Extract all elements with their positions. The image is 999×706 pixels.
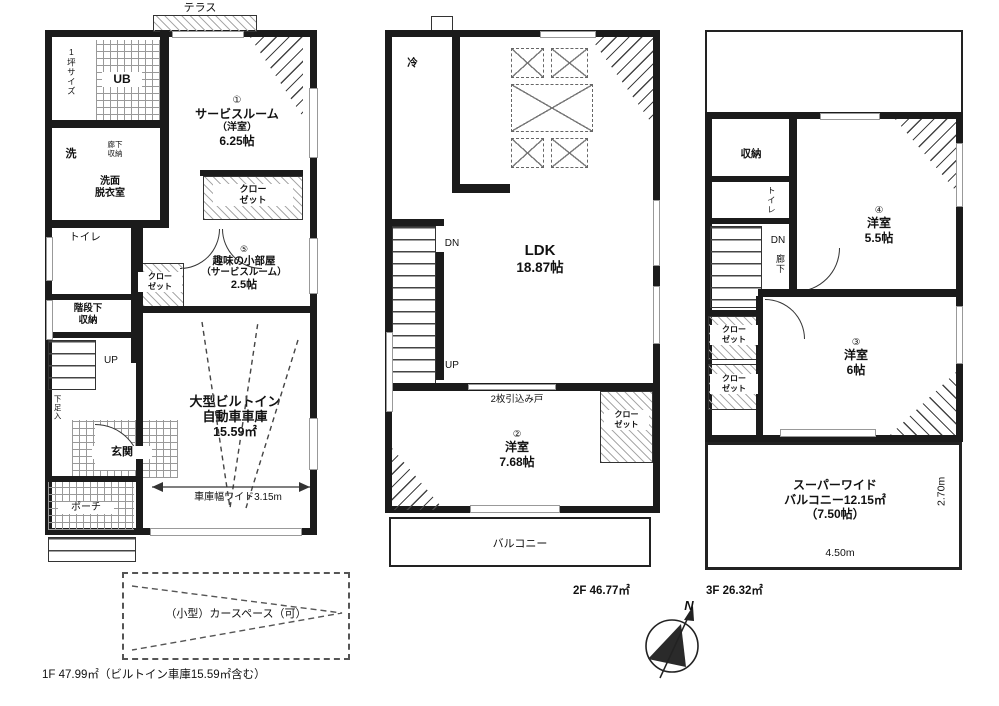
stairs-dn-label: DN [438,238,466,250]
area-3f-label: 3F 26.32㎡ [706,584,826,598]
lower-roof-outline [705,30,963,114]
entrance-label: 玄関 [92,446,152,459]
wall-segment [758,289,956,297]
room-1-size: 6.25帖 [219,134,254,149]
compass-arrow [660,611,691,678]
window [309,88,318,158]
window [820,113,880,120]
terrace-door-opening [172,31,244,38]
balcony-2f-label: バルコニー [452,538,588,551]
furniture-box [511,84,593,132]
understair-storage-label: 階段下 収納 [48,303,128,326]
wall-segment [705,218,793,224]
room-5-label: ⑤ 趣味の小部屋 （サービスルーム） 2.5帖 [186,232,302,304]
balcony-3f-line1: スーパーワイド [793,478,877,493]
toilet-3f-label: トイレ [766,186,776,215]
shoe-cabinet-label: 下足入 [53,395,62,421]
furniture-box [551,48,588,78]
bathtub-size-label: 1坪サイズ [66,47,76,96]
wall-segment [45,120,167,128]
hall-storage-label: 廊下 収納 [100,140,130,158]
sliding-door-label: 2枚引込み戸 [462,394,572,406]
area-1f-label: 1F 47.99㎡（ビルトイン車庫15.59㎡含む） [42,668,362,682]
garage-size: 15.59㎡ [213,425,257,440]
wall-segment [705,310,763,316]
room-5-subname: （サービスルーム） [201,267,286,279]
car-space-label: （小型）カースペース（可） [138,608,334,621]
furniture-box [551,138,588,168]
room-4-label: ④ 洋室 5.5帖 [826,196,932,254]
room-2-label: ② 洋室 7.68帖 [462,416,572,482]
garage-label: 大型ビルトイン 自動車車庫 15.59㎡ [163,386,307,448]
balcony-door-opening [470,505,560,513]
compass-circle [646,620,698,672]
garage-name-1: 大型ビルトイン [189,394,280,410]
stairs-1f [48,340,96,390]
room-2-name: 洋室 [505,440,529,455]
stairs-2f [392,226,436,384]
ub-label: UB [102,72,142,87]
ldk-label: LDK 18.87帖 [475,233,605,285]
stairs-up-label: UP [95,355,127,367]
room-5-size: 2.5帖 [231,279,257,292]
hallway-label: 廊下 [774,254,785,274]
wall-segment [756,296,763,442]
window [653,286,660,344]
window [386,332,393,412]
window [956,143,963,207]
stairs-3f [710,226,762,308]
room-2-size: 7.68帖 [499,455,534,470]
closet-2f-label: クロー ゼット [604,410,649,430]
room-5-name: 趣味の小部屋 [213,255,276,268]
refrigerator-label: 冷 [397,57,428,70]
wall-segment [160,30,169,228]
area-2f-label: 2F 46.77㎡ [573,584,693,598]
ldk-size: 18.87帖 [516,260,563,276]
wall-segment [452,184,510,193]
stairs-dn-label-3f: DN [764,235,792,247]
closet-3f-1-label: クロー ゼット [710,325,758,345]
wall-segment [452,30,460,190]
wall-segment [45,476,137,482]
porch-label: ポーチ [58,502,114,514]
washer-label: 洗 [55,148,87,161]
balcony-width-dim: 4.50m [805,547,875,560]
closet-3f-2-label: クロー ゼット [710,374,758,394]
balcony-3f-label: スーパーワイド バルコニー12.15㎡ （7.50帖） [740,472,930,528]
room-3-size: 6帖 [847,363,866,378]
garage-name-2: 自動車車庫 [202,409,267,425]
room-4-size: 5.5帖 [865,231,894,246]
room-1-name: サービスルーム [195,107,279,122]
room-1-label: ① サービスルーム （洋室） 6.25帖 [172,86,302,158]
window [653,200,660,266]
wall-segment [789,119,797,295]
closet-1f-2-label: クロー ゼット [138,272,182,292]
wall-segment [45,332,135,338]
exterior-steps [48,537,136,562]
room-1-subname: （洋室） [217,122,257,134]
wall-segment [140,306,317,313]
room-4-name: 洋室 [867,216,891,231]
balcony-depth-dim: 2.70m [936,461,949,521]
garage-door-opening [150,528,302,536]
window [309,238,318,294]
wall-segment [392,219,444,226]
furniture-box [511,138,544,168]
toilet-1f-label: トイレ [55,231,115,244]
room-4-number: ④ [875,205,884,217]
terrace-label: テラス [168,2,232,15]
window [309,418,318,470]
balcony-door-opening [780,429,876,437]
wall-segment [45,220,169,228]
room-2-number: ② [513,429,522,441]
compass-north-label: N [678,598,700,614]
window [540,31,596,38]
wall-segment [200,170,303,176]
room-5-number: ⑤ [240,244,248,255]
wall-segment [712,176,792,182]
wall-segment [45,294,135,300]
room-3-number: ③ [852,337,861,349]
stairs-up-label-2f: UP [438,360,466,372]
washroom-label: 洗面 脱衣室 [82,176,138,200]
floor-plan-sheet: テラス 1坪サイズ UB 洗 廊下 収納 洗面 脱衣室 ① サービスルーム （洋… [0,0,999,706]
room-3-label: ③ 洋室 6帖 [803,328,909,386]
ldk-name: LDK [525,242,556,260]
balcony-3f-line3: （7.50帖） [805,507,864,522]
sliding-door-opening [468,384,556,390]
window [46,237,53,281]
room-3-name: 洋室 [844,348,868,363]
furniture-box [511,48,544,78]
balcony-3f-line2: バルコニー12.15㎡ [784,493,886,508]
compass-needle [648,624,686,667]
room-1-number: ① [233,95,242,107]
storage-3f-label: 収納 [713,148,789,161]
window [956,306,963,364]
closet-1f-label: クロー ゼット [213,184,293,206]
garage-width-label: 車庫幅ワイド3.15m [168,492,308,504]
